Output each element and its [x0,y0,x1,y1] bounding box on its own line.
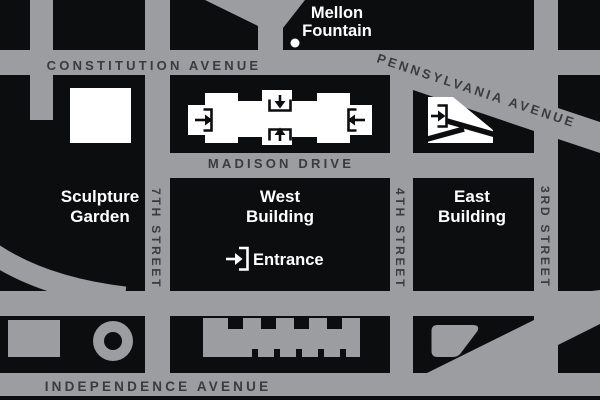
street-label-independence: INDEPENDENCE AVENUE [45,379,272,394]
national-gallery-area-map: CONSTITUTION AVENUE MADISON DRIVE INDEPE… [0,0,600,400]
street-label-fourth: 4TH STREET [393,188,407,289]
street-label-constitution: CONSTITUTION AVENUE [47,58,262,73]
west-right-wing [292,101,317,137]
street-label-seventh: 7TH STREET [149,188,163,289]
hirshhorn-ring-hole [104,332,122,350]
map-canvas: CONSTITUTION AVENUE MADISON DRIVE INDEPE… [0,0,600,400]
place-label-sculpture-line2: Garden [70,207,130,226]
notch-1 [228,318,243,329]
place-label-east-line2: Building [438,207,506,226]
block-top-far-left [0,0,30,50]
tick-4 [318,349,324,357]
west-left-pavilion [205,93,238,143]
block-top-left [53,0,145,50]
place-label-east-line1: East [454,187,490,206]
tick-5 [340,349,346,357]
west-rotunda-pavilion [262,90,292,145]
sculpture-garden-pavilion [70,88,131,143]
tick-1 [252,349,258,357]
building-square-footprint [8,320,60,357]
notch-4 [327,318,342,329]
place-label-west-line2: Building [246,207,314,226]
tick-2 [274,349,280,357]
block-top-right [558,0,600,50]
street-label-third: 3RD STREET [538,186,552,289]
place-label-sculpture-line1: Sculpture [61,187,139,206]
bottom-edge-strip [0,396,600,400]
place-label-mellon-line2: Fountain [302,22,372,40]
notch-3 [294,318,309,329]
place-label-mellon-line1: Mellon [311,4,363,22]
notch-2 [261,318,276,329]
place-label-entrance: Entrance [253,251,324,269]
block-right-of-third [558,139,600,291]
fountain-dot-icon [291,39,300,48]
place-label-west-line1: West [260,187,301,206]
tick-3 [296,349,302,357]
street-label-madison: MADISON DRIVE [208,156,354,171]
